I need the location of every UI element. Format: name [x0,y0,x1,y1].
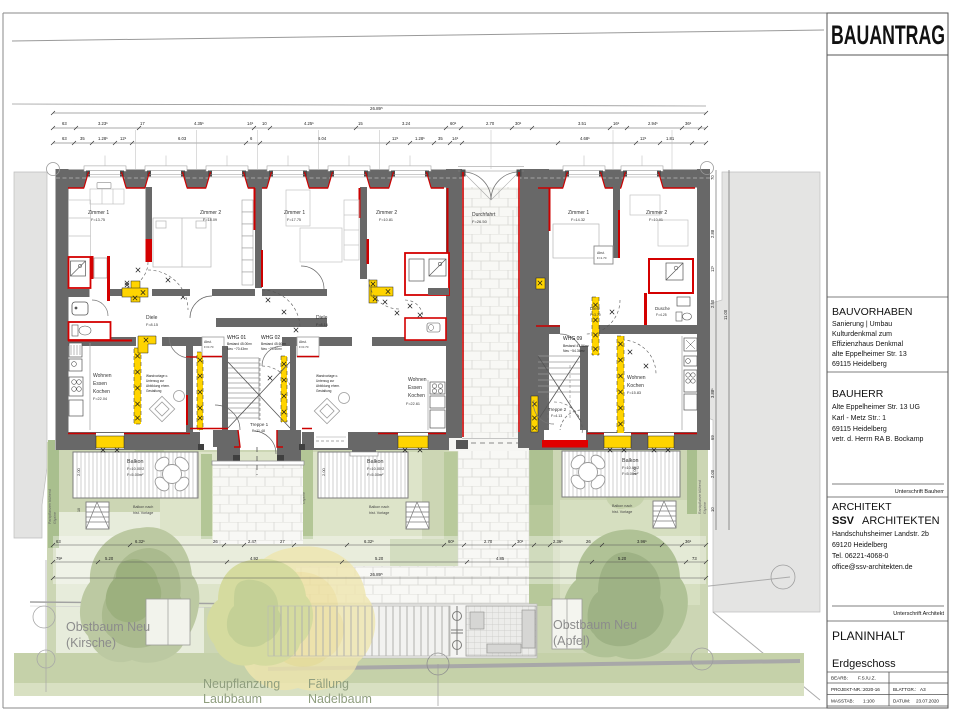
svg-text:Zimmer 1: Zimmer 1 [88,210,109,216]
svg-text:hist. Vorlage: hist. Vorlage [133,511,153,515]
svg-text:1.81: 1.81 [666,136,675,141]
svg-text:Unterschrift Architekt: Unterschrift Architekt [893,611,944,617]
svg-text:2.00: 2.00 [632,466,637,475]
svg-text:Kochen: Kochen [93,389,110,395]
svg-text:Gestaltung: Gestaltung [316,389,332,393]
svg-text:BEARB:: BEARB: [831,676,848,681]
svg-text:Sanierung | Umbau: Sanierung | Umbau [832,321,892,328]
svg-text:Neu ~54.36m²: Neu ~54.36m² [563,349,585,353]
svg-text:Dusche: Dusche [655,306,670,311]
svg-text:Nadelbaum: Nadelbaum [308,692,372,706]
svg-text:F=4.13: F=4.13 [551,414,562,418]
svg-text:hist. Vorlage: hist. Vorlage [612,510,632,514]
svg-text:4.35⁵: 4.35⁵ [194,121,204,126]
svg-text:Zimmer 1: Zimmer 1 [284,210,305,216]
svg-text:ARCHITEKT: ARCHITEKT [832,501,892,513]
svg-text:Glyzine: Glyzine [53,512,57,524]
svg-text:Rankpflanze blühend: Rankpflanze blühend [698,480,702,514]
svg-text:Wohnen: Wohnen [93,373,112,379]
svg-text:1:100: 1:100 [863,699,875,704]
svg-text:14⁵: 14⁵ [247,121,254,126]
svg-text:Balkon: Balkon [622,458,638,464]
svg-text:Kochen: Kochen [627,383,644,389]
svg-text:Essen: Essen [93,381,107,387]
svg-text:F=5.00m²: F=5.00m² [367,473,384,477]
svg-text:WHG 02: WHG 02 [261,335,280,341]
svg-text:Wohnen: Wohnen [627,375,646,381]
svg-text:3.24: 3.24 [402,121,411,126]
svg-text:DATUM:: DATUM: [893,699,910,704]
svg-text:17: 17 [140,121,145,126]
svg-text:F=11.48: F=11.48 [252,429,265,433]
svg-text:(Apfel): (Apfel) [553,634,590,648]
svg-text:4.25⁵: 4.25⁵ [304,121,314,126]
svg-text:2.70: 2.70 [486,121,495,126]
svg-text:63: 63 [62,136,67,141]
svg-text:Obstbaum Neu: Obstbaum Neu [553,618,637,632]
svg-text:Wandvorlage o.: Wandvorlage o. [146,374,168,378]
svg-text:2.00: 2.00 [710,469,715,478]
svg-text:Parkpflanzen blühend: Parkpflanzen blühend [48,489,52,524]
svg-text:30⁵: 30⁵ [517,539,524,544]
svg-text:Abst.: Abst. [204,340,212,344]
svg-text:Kulturdenkmal zum: Kulturdenkmal zum [832,331,892,338]
svg-text:30⁵: 30⁵ [515,121,522,126]
svg-text:Glyzine: Glyzine [703,502,707,514]
svg-text:Diele: Diele [146,315,158,321]
svg-text:2.94⁵: 2.94⁵ [648,121,658,126]
svg-text:Karl - Metz Str.: 1: Karl - Metz Str.: 1 [832,415,886,422]
svg-text:26: 26 [213,539,218,544]
svg-text:F=13.75: F=13.75 [91,218,105,222]
svg-text:69: 69 [710,435,715,440]
svg-text:63: 63 [62,121,67,126]
svg-text:Handschuhsheimer Landstr. 2b: Handschuhsheimer Landstr. 2b [832,531,929,538]
svg-text:2.00: 2.00 [321,467,326,476]
svg-text:Wandvorlage o.: Wandvorlage o. [316,374,338,378]
svg-text:WHG 09: WHG 09 [563,336,582,342]
svg-text:Tel. 06221-4068-0: Tel. 06221-4068-0 [832,553,889,560]
svg-text:2.00: 2.00 [76,467,81,476]
svg-text:Diele: Diele [590,306,601,311]
svg-text:2.70: 2.70 [484,539,493,544]
svg-text:35: 35 [80,136,85,141]
svg-text:alte Eppelheimer Str. 13: alte Eppelheimer Str. 13 [832,351,907,358]
svg-text:Durchfahrt: Durchfahrt [472,212,496,218]
svg-text:4.92: 4.92 [250,556,259,561]
svg-text:69120 Heidelberg: 69120 Heidelberg [832,542,887,549]
svg-text:73: 73 [692,556,697,561]
svg-text:F=15.83: F=15.83 [627,391,641,395]
svg-text:Bestand 45.00m²: Bestand 45.00m² [227,342,253,346]
svg-text:A3: A3 [920,687,926,692]
svg-text:69115 Heidelberg: 69115 Heidelberg [832,361,887,368]
svg-text:hist. Vorlage: hist. Vorlage [369,511,389,515]
svg-text:26: 26 [586,539,591,544]
svg-text:F.S./U.Z.: F.S./U.Z. [858,676,876,681]
svg-text:MASSTAB:: MASSTAB: [831,699,854,704]
svg-text:Zimmer 2: Zimmer 2 [646,210,667,216]
svg-text:3.23⁵: 3.23⁵ [98,121,108,126]
svg-text:63: 63 [56,539,61,544]
svg-text:F=0.70: F=0.70 [299,345,309,349]
svg-text:Balkon nach: Balkon nach [369,505,389,509]
svg-text:6.04: 6.04 [318,136,327,141]
svg-text:6.32⁵: 6.32⁵ [364,539,374,544]
svg-text:BAUVORHABEN: BAUVORHABEN [832,306,913,318]
svg-text:F=17.75: F=17.75 [287,218,301,222]
svg-text:12⁵: 12⁵ [120,136,127,141]
svg-text:26.89⁵: 26.89⁵ [370,106,383,111]
svg-text:60⁵: 60⁵ [448,539,455,544]
svg-text:2.50: 2.50 [710,299,715,308]
svg-text:6.32⁵: 6.32⁵ [135,539,145,544]
svg-text:2.36⁵: 2.36⁵ [553,539,563,544]
svg-text:Neupflanzung: Neupflanzung [203,677,280,691]
svg-text:Balkon nach: Balkon nach [133,505,153,509]
svg-text:3.51: 3.51 [578,121,587,126]
svg-text:Abst.: Abst. [597,251,605,255]
svg-text:12⁵: 12⁵ [392,136,399,141]
svg-text:office@ssv-architekten.de: office@ssv-architekten.de [832,564,913,571]
svg-text:F=22.04: F=22.04 [93,397,107,401]
svg-text:10: 10 [710,507,715,512]
svg-text:Abst.: Abst. [299,340,307,344]
svg-text:F=4.25: F=4.25 [656,313,667,317]
svg-text:Balkon: Balkon [127,459,143,465]
svg-text:F=26.50: F=26.50 [472,219,488,224]
svg-text:26.89⁵: 26.89⁵ [370,572,383,577]
svg-text:F=5.00m²: F=5.00m² [127,473,144,477]
svg-text:Treppe 2: Treppe 2 [548,407,567,412]
svg-text:Alte Eppelheimer Str. 13 UG: Alte Eppelheimer Str. 13 UG [832,404,920,411]
svg-text:Neu ~70.43m²: Neu ~70.43m² [227,347,249,351]
svg-text:10: 10 [262,121,267,126]
svg-text:5.20: 5.20 [105,556,114,561]
svg-text:Zimmer 2: Zimmer 2 [376,210,397,216]
svg-text:Balkon: Balkon [367,459,383,465]
svg-text:PROJEKT-NR.:: PROJEKT-NR.: [831,687,863,692]
svg-text:Neu ~70.60m²: Neu ~70.60m² [261,347,283,351]
svg-text:Obstbaum Neu: Obstbaum Neu [66,620,150,634]
svg-text:BLATTGR.:: BLATTGR.: [893,687,916,692]
svg-text:3.88⁵: 3.88⁵ [710,388,715,398]
svg-text:1.28⁵: 1.28⁵ [98,136,108,141]
svg-text:Unterzug zur: Unterzug zur [146,379,165,383]
svg-text:5.20: 5.20 [618,556,627,561]
svg-text:F=3.70: F=3.70 [590,313,601,317]
svg-text:PLANINHALT: PLANINHALT [832,629,906,643]
svg-text:F=14.32: F=14.32 [571,218,585,222]
svg-text:Laubbaum: Laubbaum [203,692,262,706]
svg-text:Fällung: Fällung [308,677,349,691]
svg-text:F=10.01: F=10.01 [649,218,663,222]
svg-text:35: 35 [438,136,443,141]
svg-text:Abbildung ehem.: Abbildung ehem. [316,384,340,388]
svg-text:vetr. d. Herrn RA B. Bockamp: vetr. d. Herrn RA B. Bockamp [832,436,924,443]
svg-text:2.88: 2.88 [710,229,715,238]
svg-text:F=8.16: F=8.16 [316,323,328,327]
svg-text:2020-16: 2020-16 [863,687,880,692]
svg-text:1.28⁵: 1.28⁵ [415,136,425,141]
svg-text:Kochen: Kochen [408,393,425,399]
svg-text:4.85: 4.85 [496,556,505,561]
svg-text:Wohnen: Wohnen [408,377,427,383]
svg-text:15: 15 [358,121,363,126]
svg-text:F=18.09: F=18.09 [203,218,217,222]
svg-text:11.00: 11.00 [723,309,728,320]
svg-text:Unterzug zur: Unterzug zur [316,379,335,383]
svg-text:SSV: SSV [832,515,855,527]
svg-text:Treppe 1: Treppe 1 [250,422,269,427]
svg-text:Bestand 45.60m²: Bestand 45.60m² [261,342,287,346]
svg-text:F=1.70: F=1.70 [597,256,607,260]
svg-text:Abbildung ehem.: Abbildung ehem. [146,384,170,388]
svg-text:Gestaltung: Gestaltung [146,389,162,393]
svg-text:(Kirsche): (Kirsche) [66,636,116,650]
svg-text:10: 10 [77,508,81,512]
svg-text:Zimmer 1: Zimmer 1 [568,210,589,216]
svg-text:23.07.2020: 23.07.2020 [916,699,939,704]
svg-text:Diele: Diele [316,315,328,321]
svg-text:69115 Heidelberg: 69115 Heidelberg [832,426,887,433]
svg-text:2.47: 2.47 [248,539,257,544]
svg-text:Erdgeschoss: Erdgeschoss [832,658,896,670]
svg-text:27: 27 [280,539,285,544]
svg-text:F=10.81: F=10.81 [379,218,393,222]
svg-text:WHG 01: WHG 01 [227,335,246,341]
svg-text:36⁵: 36⁵ [685,539,692,544]
svg-text:ARCHITEKTEN: ARCHITEKTEN [862,515,940,527]
svg-text:70: 70 [710,175,715,180]
svg-text:BAUHERR: BAUHERR [832,388,884,400]
svg-text:F=10.00/2: F=10.00/2 [127,467,144,471]
svg-text:Zimmer 2: Zimmer 2 [200,210,221,216]
svg-text:6.03: 6.03 [178,136,187,141]
svg-text:14⁵: 14⁵ [452,136,459,141]
svg-text:12⁵: 12⁵ [640,136,647,141]
svg-text:F=22.61: F=22.61 [406,402,420,406]
svg-text:5.20: 5.20 [375,556,384,561]
svg-text:79⁵: 79⁵ [56,556,63,561]
svg-text:F=8.15: F=8.15 [146,323,158,327]
svg-text:Bestand 47.96m²: Bestand 47.96m² [563,344,590,348]
svg-text:Balkon nach: Balkon nach [612,504,632,508]
svg-text:Unterschrift Bauherr: Unterschrift Bauherr [895,489,944,495]
svg-text:36⁵: 36⁵ [685,121,692,126]
svg-text:F=0.70: F=0.70 [204,345,214,349]
svg-text:3.96⁵: 3.96⁵ [637,539,647,544]
svg-text:12⁵: 12⁵ [710,265,715,272]
svg-text:60⁵: 60⁵ [450,121,457,126]
svg-text:4.68⁵: 4.68⁵ [580,136,590,141]
svg-text:Effizienzhaus Denkmal: Effizienzhaus Denkmal [832,341,904,348]
svg-text:BAUANTRAG: BAUANTRAG [831,20,945,50]
svg-text:16⁵: 16⁵ [613,121,620,126]
svg-text:F=10.00/2: F=10.00/2 [367,467,384,471]
svg-text:Essen: Essen [408,385,422,391]
